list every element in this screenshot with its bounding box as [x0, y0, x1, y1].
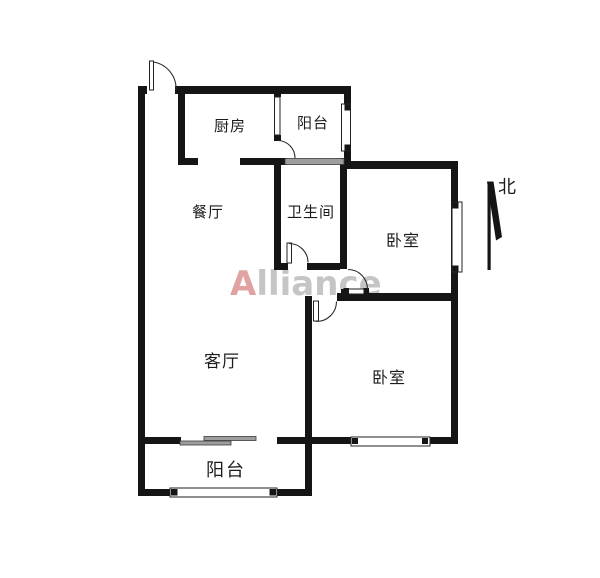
window-bedroom-north-right	[452, 202, 462, 272]
wall-bathroom-left	[274, 158, 281, 270]
north-arrow-shaft	[488, 184, 491, 270]
window-kitchen-balcony-divider	[275, 97, 281, 135]
sliding-door-living-balcony	[180, 437, 256, 446]
door-leaf-entry	[150, 61, 154, 90]
wall-bedroom-north-top	[344, 161, 458, 169]
window-balcony-north-bottom	[285, 159, 344, 165]
window-cap	[422, 438, 428, 444]
room-label-bedroom-south: 卧室	[372, 364, 406, 388]
door-jamb-block	[344, 288, 350, 295]
floorplan-canvas: Alliance	[0, 0, 600, 578]
north-label: 北	[498, 173, 517, 199]
door-arc-bedroom-south	[316, 302, 337, 322]
door-leaf-bathroom	[287, 243, 292, 263]
window-cap	[453, 203, 459, 209]
sliding-door-panel	[180, 441, 231, 445]
window-balcony-south-bottom	[170, 488, 277, 497]
door-arc-entry	[154, 62, 177, 90]
window-cap	[453, 266, 459, 272]
room-label-bedroom-north: 卧室	[386, 227, 420, 251]
wall-kitchen-left	[178, 93, 185, 165]
wall-left	[138, 86, 145, 496]
wall-bathroom-bottom-right	[307, 263, 340, 270]
window-cap	[171, 489, 178, 496]
wall-bedroom-south-bottom-left	[312, 437, 351, 444]
sliding-door-panel	[204, 437, 256, 441]
walls	[138, 86, 458, 496]
window-cap	[270, 489, 277, 496]
door-jamb-block	[364, 288, 370, 295]
window-bedroom-south-bottom	[351, 437, 430, 446]
room-label-balcony-south: 阳台	[206, 456, 246, 482]
wall-top	[175, 86, 351, 94]
window-balcony-north-right	[342, 104, 351, 151]
window-cap	[352, 438, 358, 444]
floorplan-drawing	[0, 0, 600, 578]
window-cap	[345, 145, 351, 151]
door-leaf-bedroom-south	[314, 301, 319, 321]
wall-bathroom-right	[340, 158, 347, 269]
door-arc-kitchen-balcony	[278, 141, 296, 159]
wall-kitchen-balcony-divider-top	[274, 86, 281, 97]
wall-bedroom-south-left	[305, 296, 312, 444]
room-label-dining: 餐厅	[192, 201, 224, 222]
window-cap	[345, 105, 351, 111]
room-label-living: 客厅	[204, 347, 240, 372]
room-label-bathroom: 卫生间	[287, 201, 335, 222]
room-label-balcony-north: 阳台	[297, 112, 329, 133]
wall-balcony-south-right	[305, 437, 312, 496]
room-label-kitchen: 厨房	[214, 115, 246, 136]
door-arc-bedroom-north	[348, 270, 368, 290]
